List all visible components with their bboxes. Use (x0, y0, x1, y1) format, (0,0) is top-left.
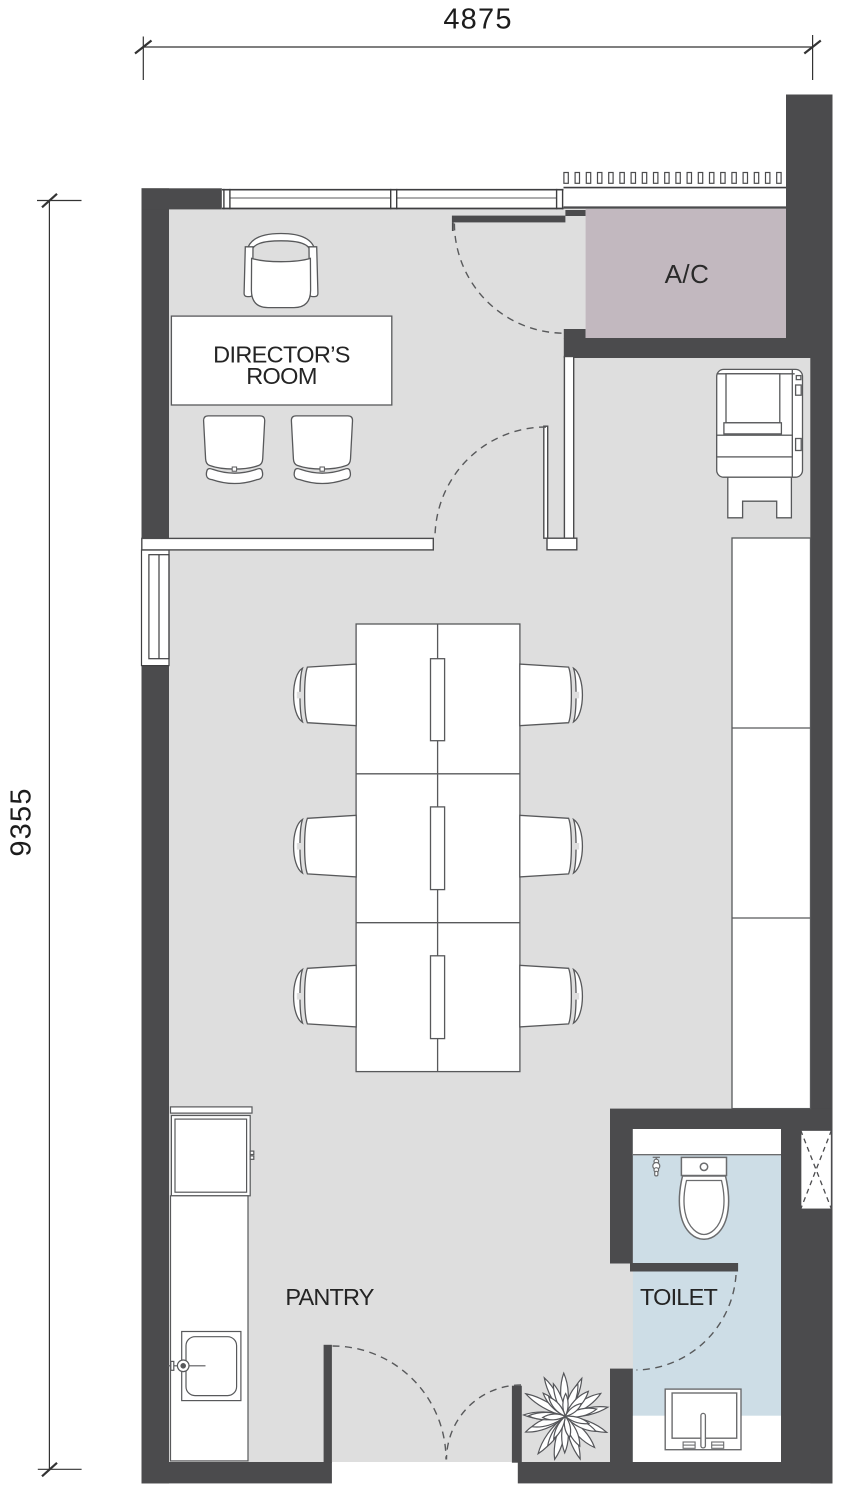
svg-text:A/C: A/C (665, 259, 710, 289)
svg-text:4875: 4875 (443, 4, 512, 36)
svg-text:TOILET: TOILET (640, 1284, 717, 1310)
svg-text:PANTRY: PANTRY (285, 1284, 374, 1310)
svg-text:9355: 9355 (6, 787, 38, 856)
svg-text:ROOM: ROOM (246, 363, 317, 389)
